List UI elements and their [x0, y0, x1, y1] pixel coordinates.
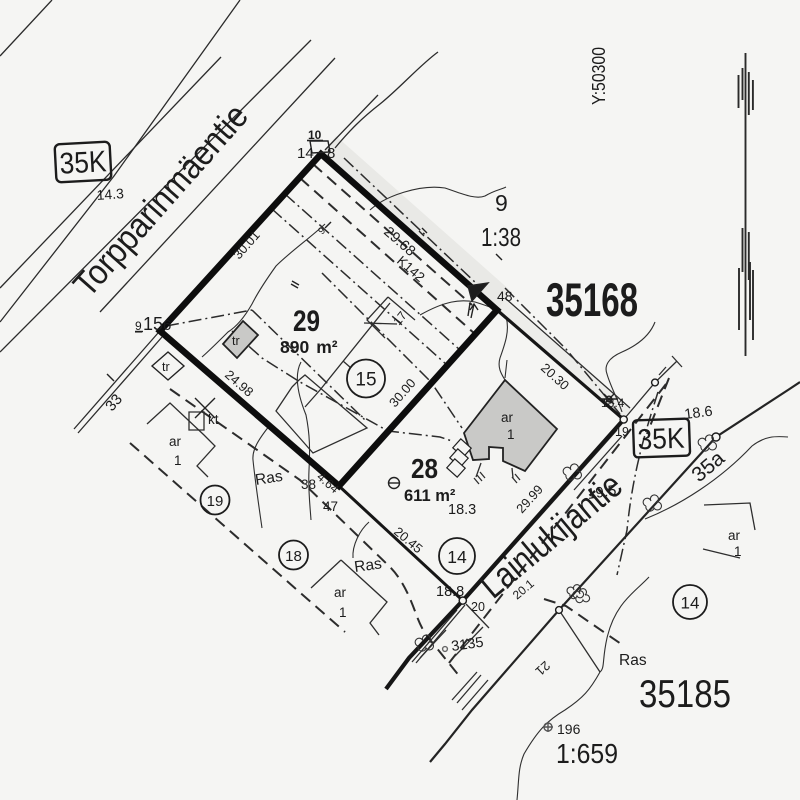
svg-text:9: 9 [495, 190, 508, 216]
svg-text:tr: tr [162, 360, 170, 374]
svg-text:15: 15 [143, 314, 163, 334]
svg-text:1: 1 [734, 544, 742, 559]
svg-text:29: 29 [293, 305, 320, 338]
svg-text:14.3: 14.3 [96, 185, 125, 203]
svg-text:9: 9 [135, 319, 142, 333]
svg-text:35185: 35185 [639, 673, 731, 716]
svg-text:196: 196 [557, 721, 581, 737]
svg-text:8: 8 [327, 145, 335, 162]
svg-text:tr: tr [232, 334, 240, 348]
svg-text:1: 1 [507, 427, 515, 442]
svg-text:Y:50300: Y:50300 [589, 47, 609, 105]
svg-text:1:38: 1:38 [481, 222, 521, 252]
svg-text:890 m²: 890 m² [280, 337, 338, 357]
svg-text:47: 47 [323, 499, 338, 514]
svg-text:10: 10 [308, 128, 322, 142]
svg-text:18.3: 18.3 [448, 502, 476, 518]
svg-text:35K: 35K [637, 423, 686, 457]
svg-text:ar: ar [728, 528, 741, 543]
svg-text:18.6: 18.6 [684, 404, 714, 423]
svg-text:18.4: 18.4 [601, 396, 625, 410]
svg-text:20: 20 [471, 600, 485, 614]
svg-text:1:659: 1:659 [556, 738, 618, 769]
svg-text:35168: 35168 [546, 273, 638, 326]
svg-text:38: 38 [301, 477, 316, 492]
svg-text:18.8: 18.8 [436, 584, 464, 600]
svg-text:18: 18 [285, 548, 302, 565]
svg-text:28: 28 [411, 453, 438, 484]
svg-text:14: 14 [297, 145, 314, 162]
svg-text:Ras: Ras [619, 652, 647, 669]
svg-text:ar: ar [334, 585, 347, 600]
svg-text:ar: ar [501, 410, 514, 425]
svg-text:14: 14 [681, 594, 700, 613]
svg-text:19: 19 [615, 425, 629, 439]
svg-text:14: 14 [447, 547, 467, 567]
svg-text:48: 48 [497, 288, 513, 304]
svg-text:1: 1 [339, 605, 347, 620]
svg-text:6: 6 [163, 317, 171, 334]
svg-text:35K: 35K [59, 145, 108, 180]
svg-text:kt: kt [208, 412, 219, 427]
svg-text:1: 1 [174, 453, 182, 468]
svg-text:15: 15 [355, 370, 376, 391]
svg-text:ar: ar [169, 434, 182, 449]
svg-text:19: 19 [207, 493, 224, 510]
